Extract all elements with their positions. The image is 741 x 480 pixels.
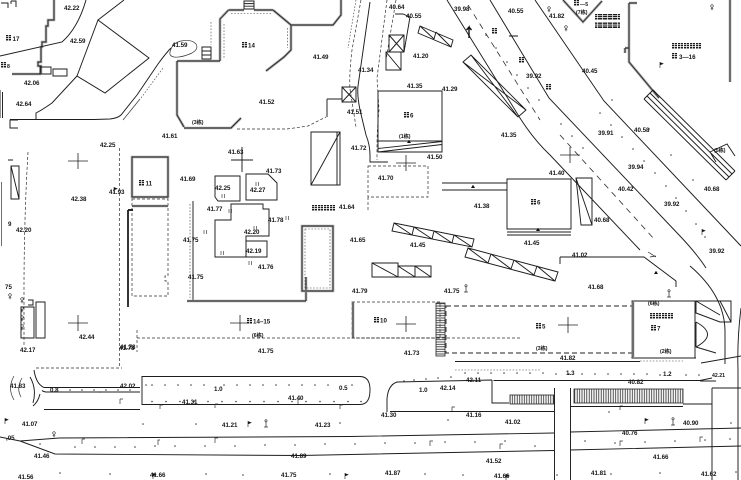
svg-text:41.35: 41.35 — [501, 132, 517, 139]
svg-text:41.34: 41.34 — [358, 67, 374, 74]
svg-text:41.78: 41.78 — [119, 345, 135, 352]
svg-text:41.35: 41.35 — [407, 83, 423, 90]
svg-text:41.77: 41.77 — [207, 206, 223, 213]
svg-text:41.82: 41.82 — [549, 13, 565, 20]
svg-text:41.78: 41.78 — [268, 217, 284, 224]
svg-text:41.23: 41.23 — [315, 422, 331, 429]
svg-text:42.44: 42.44 — [79, 334, 95, 341]
svg-text:41.31: 41.31 — [182, 399, 198, 406]
svg-text:41.72: 41.72 — [351, 145, 367, 152]
svg-text:41.75: 41.75 — [258, 348, 274, 355]
svg-text:39.92: 39.92 — [664, 201, 680, 208]
svg-text:11: 11 — [146, 181, 153, 188]
svg-text:40.82: 40.82 — [628, 379, 644, 386]
svg-text:41.16: 41.16 — [466, 412, 482, 419]
svg-text:40.68: 40.68 — [704, 186, 720, 193]
svg-text:41.75: 41.75 — [183, 237, 199, 244]
svg-text:42.14: 42.14 — [440, 385, 456, 392]
svg-text:6: 6 — [410, 113, 414, 120]
svg-text:41.66: 41.66 — [150, 472, 166, 479]
svg-text:41.40: 41.40 — [549, 170, 565, 177]
svg-text:42.17: 42.17 — [20, 347, 36, 354]
svg-text:5: 5 — [542, 324, 546, 331]
svg-text:41.89: 41.89 — [291, 453, 307, 460]
svg-text:40.58: 40.58 — [634, 127, 650, 134]
svg-text:0.5: 0.5 — [339, 385, 348, 392]
svg-text:41.02: 41.02 — [572, 252, 588, 259]
svg-text:(5栋): (5栋) — [714, 146, 726, 154]
svg-text:42.25: 42.25 — [100, 142, 116, 149]
svg-text:41.40: 41.40 — [288, 395, 304, 402]
svg-text:42.19: 42.19 — [246, 248, 262, 255]
svg-text:41.49: 41.49 — [313, 54, 329, 61]
svg-text:(6栋): (6栋) — [648, 299, 660, 307]
svg-text:(3栋): (3栋) — [536, 344, 548, 352]
svg-text:40.55: 40.55 — [508, 8, 524, 15]
svg-text:41.65: 41.65 — [350, 237, 366, 244]
svg-text:41.63: 41.63 — [228, 149, 244, 156]
svg-text:40.45: 40.45 — [582, 68, 598, 75]
svg-text:42.59: 42.59 — [70, 38, 86, 45]
svg-text:42.11: 42.11 — [466, 377, 482, 384]
svg-text:(6栋): (6栋) — [252, 331, 264, 339]
svg-text:39.94: 39.94 — [628, 164, 644, 171]
svg-text:42.38: 42.38 — [71, 196, 87, 203]
svg-text:1.2: 1.2 — [663, 371, 672, 378]
svg-text:41.46: 41.46 — [34, 453, 50, 460]
svg-text:41.75: 41.75 — [444, 288, 460, 295]
svg-text:42.21: 42.21 — [712, 373, 725, 379]
svg-text:41.87: 41.87 — [385, 470, 401, 477]
svg-text:42.02: 42.02 — [120, 383, 136, 390]
svg-text:40.68: 40.68 — [594, 217, 610, 224]
svg-text:42.20: 42.20 — [16, 227, 32, 234]
svg-text:39.91: 39.91 — [598, 130, 614, 137]
svg-text:9: 9 — [8, 221, 12, 228]
svg-text:41.79: 41.79 — [352, 288, 368, 295]
svg-text:0.8: 0.8 — [50, 387, 59, 394]
svg-text:42.22: 42.22 — [64, 5, 80, 12]
svg-text:(3栋): (3栋) — [192, 118, 204, 126]
svg-text:40.90: 40.90 — [683, 420, 699, 427]
svg-text:41.62: 41.62 — [701, 471, 717, 478]
svg-text:41.66: 41.66 — [653, 454, 669, 461]
svg-text:41.69: 41.69 — [180, 176, 196, 183]
svg-text:41.21: 41.21 — [222, 422, 238, 429]
svg-text:42.20: 42.20 — [244, 229, 260, 236]
svg-text:14–15: 14–15 — [253, 319, 271, 326]
svg-text:41.76: 41.76 — [258, 264, 274, 271]
svg-text:41.52: 41.52 — [486, 458, 502, 465]
svg-text:40.64: 40.64 — [389, 4, 405, 11]
svg-text:1.3: 1.3 — [566, 370, 575, 377]
svg-text:41.93: 41.93 — [109, 189, 125, 196]
svg-text:41.07: 41.07 — [22, 421, 38, 428]
svg-text:41.30: 41.30 — [381, 412, 397, 419]
svg-text:41.83: 41.83 — [10, 383, 26, 390]
svg-text:1.0: 1.0 — [419, 387, 428, 394]
svg-text:41.61: 41.61 — [162, 133, 178, 140]
svg-text:10: 10 — [380, 318, 387, 325]
svg-text:41.68: 41.68 — [588, 284, 604, 291]
svg-text:41.38: 41.38 — [474, 203, 490, 210]
svg-text:7: 7 — [657, 326, 661, 333]
svg-text:41.52: 41.52 — [259, 99, 275, 106]
svg-text:41.82: 41.82 — [560, 355, 576, 362]
svg-text:41.64: 41.64 — [339, 204, 355, 211]
svg-text:41.70: 41.70 — [378, 175, 394, 182]
svg-text:41.02: 41.02 — [505, 419, 521, 426]
svg-text:(2栋): (2栋) — [660, 347, 672, 355]
svg-text:3—16: 3—16 — [679, 54, 696, 61]
svg-text:41.56: 41.56 — [18, 474, 34, 480]
svg-text:(1栋): (1栋) — [399, 132, 411, 140]
svg-text:42.25: 42.25 — [215, 185, 231, 192]
svg-text:14: 14 — [248, 43, 255, 50]
svg-text:8: 8 — [7, 64, 10, 70]
svg-text:39.92: 39.92 — [709, 248, 725, 255]
svg-text:41.45: 41.45 — [524, 240, 540, 247]
svg-text:41.45: 41.45 — [410, 242, 426, 249]
svg-text:39.98: 39.98 — [454, 6, 470, 13]
svg-text:42.64: 42.64 — [16, 101, 32, 108]
svg-text:39.92: 39.92 — [526, 73, 542, 80]
svg-text:1.0: 1.0 — [214, 386, 223, 393]
svg-text:41.29: 41.29 — [442, 86, 458, 93]
svg-text:42.06: 42.06 — [24, 80, 40, 87]
svg-text:41.75: 41.75 — [188, 274, 204, 281]
svg-text:41.59: 41.59 — [172, 42, 188, 49]
svg-text:(7栋): (7栋) — [576, 8, 588, 16]
svg-text:—5: —5 — [580, 2, 588, 8]
svg-text:41.81: 41.81 — [591, 470, 607, 477]
svg-text:75: 75 — [5, 284, 12, 291]
svg-text:41.73: 41.73 — [266, 168, 282, 175]
svg-text:41.20: 41.20 — [413, 53, 429, 60]
svg-text:41.50: 41.50 — [427, 154, 443, 161]
svg-text:41.75: 41.75 — [281, 472, 297, 479]
svg-text:42.27: 42.27 — [250, 187, 266, 194]
svg-text:40.55: 40.55 — [406, 13, 422, 20]
svg-text:40.42: 40.42 — [618, 186, 634, 193]
svg-text:6: 6 — [537, 200, 541, 207]
svg-text:41.73: 41.73 — [404, 350, 420, 357]
svg-text:17: 17 — [13, 36, 20, 43]
